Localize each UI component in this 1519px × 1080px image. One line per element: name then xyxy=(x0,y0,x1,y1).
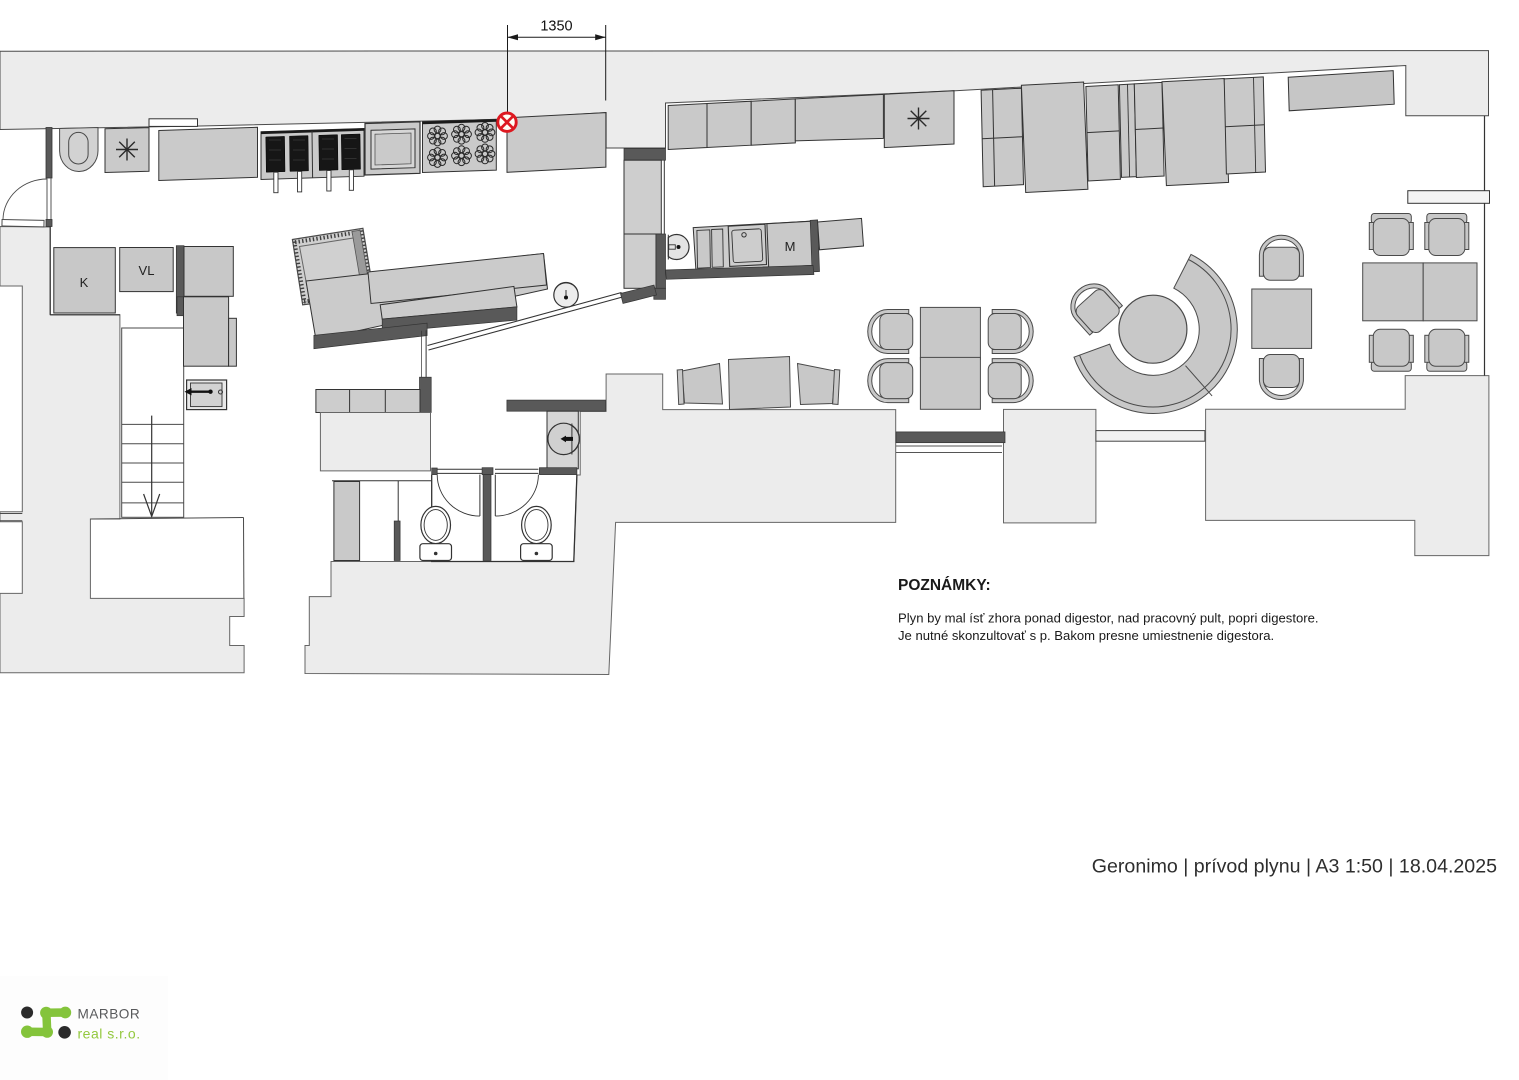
svg-text:Plyn by mal ísť zhora ponad di: Plyn by mal ísť zhora ponad digestor, na… xyxy=(898,611,1319,626)
svg-text:VL: VL xyxy=(139,263,155,278)
svg-text:real s.r.o.: real s.r.o. xyxy=(78,1026,141,1042)
svg-text:M: M xyxy=(785,239,796,254)
svg-text:K: K xyxy=(80,275,89,290)
svg-text:Geronimo | prívod plynu | A3 1: Geronimo | prívod plynu | A3 1:50 | 18.0… xyxy=(1092,856,1497,878)
svg-text:MARBOR: MARBOR xyxy=(78,1007,141,1022)
svg-text:Je nutné skonzultovať s p. Bak: Je nutné skonzultovať s p. Bakom presne … xyxy=(898,628,1274,643)
svg-text:POZNÁMKY:: POZNÁMKY: xyxy=(898,577,991,594)
svg-text:1350: 1350 xyxy=(540,19,572,35)
